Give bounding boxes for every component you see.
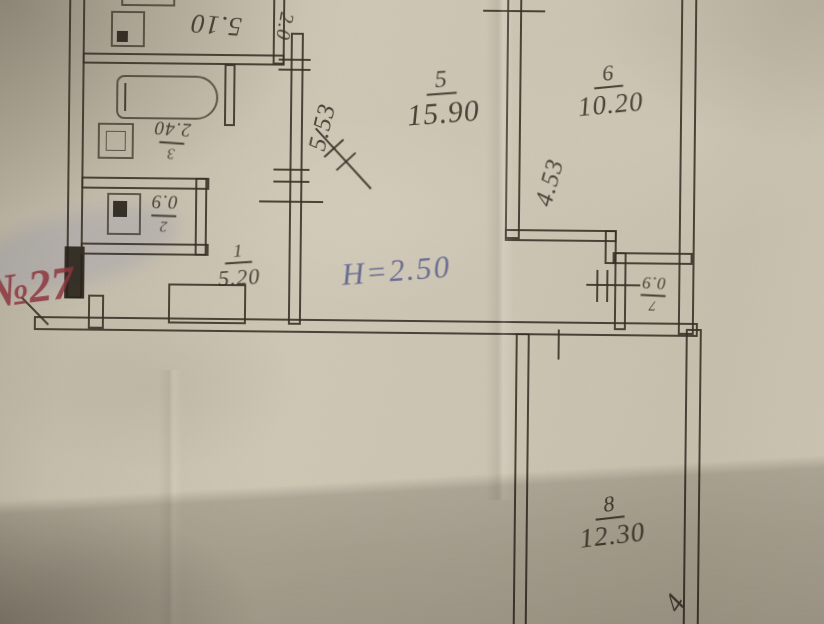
ceiling-height-note: Н=2.50 bbox=[340, 249, 452, 293]
wall bbox=[81, 243, 209, 256]
wall bbox=[513, 333, 530, 624]
room-2-label: 2 0.9 bbox=[150, 193, 178, 235]
dimension-tick bbox=[273, 181, 309, 183]
dimension-tick bbox=[586, 284, 640, 287]
photographed-floorplan-document: 1 5.20 2 0.9 3 2.40 5 15.90 6 10.20 7 0.… bbox=[0, 0, 824, 624]
room-6-label: 6 10.20 bbox=[574, 59, 645, 121]
washbasin-inner bbox=[106, 131, 126, 151]
room-area: 12.30 bbox=[578, 515, 647, 552]
dimension-tick bbox=[279, 69, 311, 71]
room-area: 2.40 bbox=[153, 119, 192, 143]
dimension-tick bbox=[483, 10, 545, 13]
room-3-label: 3 2.40 bbox=[152, 119, 192, 162]
room-number: 3 bbox=[158, 141, 185, 162]
room-area: 5.20 bbox=[217, 262, 261, 289]
wall bbox=[614, 252, 627, 330]
room-number: 6 bbox=[592, 61, 623, 90]
dimension-tick bbox=[273, 169, 309, 171]
room-area: 10.20 bbox=[576, 85, 644, 121]
stove-burner-icon bbox=[117, 31, 128, 42]
dimension-tick bbox=[596, 270, 598, 302]
dimension-tick bbox=[259, 200, 323, 203]
room-number: 2 bbox=[151, 215, 177, 235]
counter-icon bbox=[121, 0, 175, 7]
unit-number-stamp: №27 bbox=[0, 255, 77, 319]
room-number: 7 bbox=[640, 294, 666, 313]
room-number: 8 bbox=[593, 492, 625, 521]
room-1-label: 1 5.20 bbox=[216, 240, 261, 289]
dimension-tick bbox=[606, 270, 608, 302]
wall bbox=[683, 329, 702, 624]
room-area: 0.9 bbox=[151, 193, 178, 216]
dimension-room6-side: 4.53 bbox=[529, 156, 569, 210]
room-area: 0.9 bbox=[641, 274, 666, 295]
wall bbox=[505, 0, 523, 239]
room-number: 5 bbox=[425, 66, 457, 96]
room-number: 1 bbox=[224, 241, 252, 265]
dimension-tick bbox=[558, 330, 560, 360]
wall bbox=[34, 316, 698, 337]
wall bbox=[678, 0, 698, 335]
wall bbox=[224, 64, 236, 126]
toilet-tank bbox=[113, 201, 127, 217]
wall bbox=[505, 229, 617, 242]
wall bbox=[83, 53, 285, 66]
room-7-label: 7 0.9 bbox=[640, 274, 667, 313]
room-5-label: 5 15.90 bbox=[404, 64, 481, 130]
bathtub-icon bbox=[116, 75, 218, 120]
bathtub-detail bbox=[124, 83, 126, 111]
dimension-top-room-width: 5.10 bbox=[189, 7, 243, 42]
wall bbox=[81, 177, 209, 190]
wall bbox=[288, 33, 304, 325]
room-8-label: 8 12.30 bbox=[575, 490, 647, 553]
dimension-tick bbox=[279, 59, 311, 61]
floor-plan-drawing: 1 5.20 2 0.9 3 2.40 5 15.90 6 10.20 7 0.… bbox=[0, 0, 824, 624]
room-area: 15.90 bbox=[406, 92, 481, 130]
